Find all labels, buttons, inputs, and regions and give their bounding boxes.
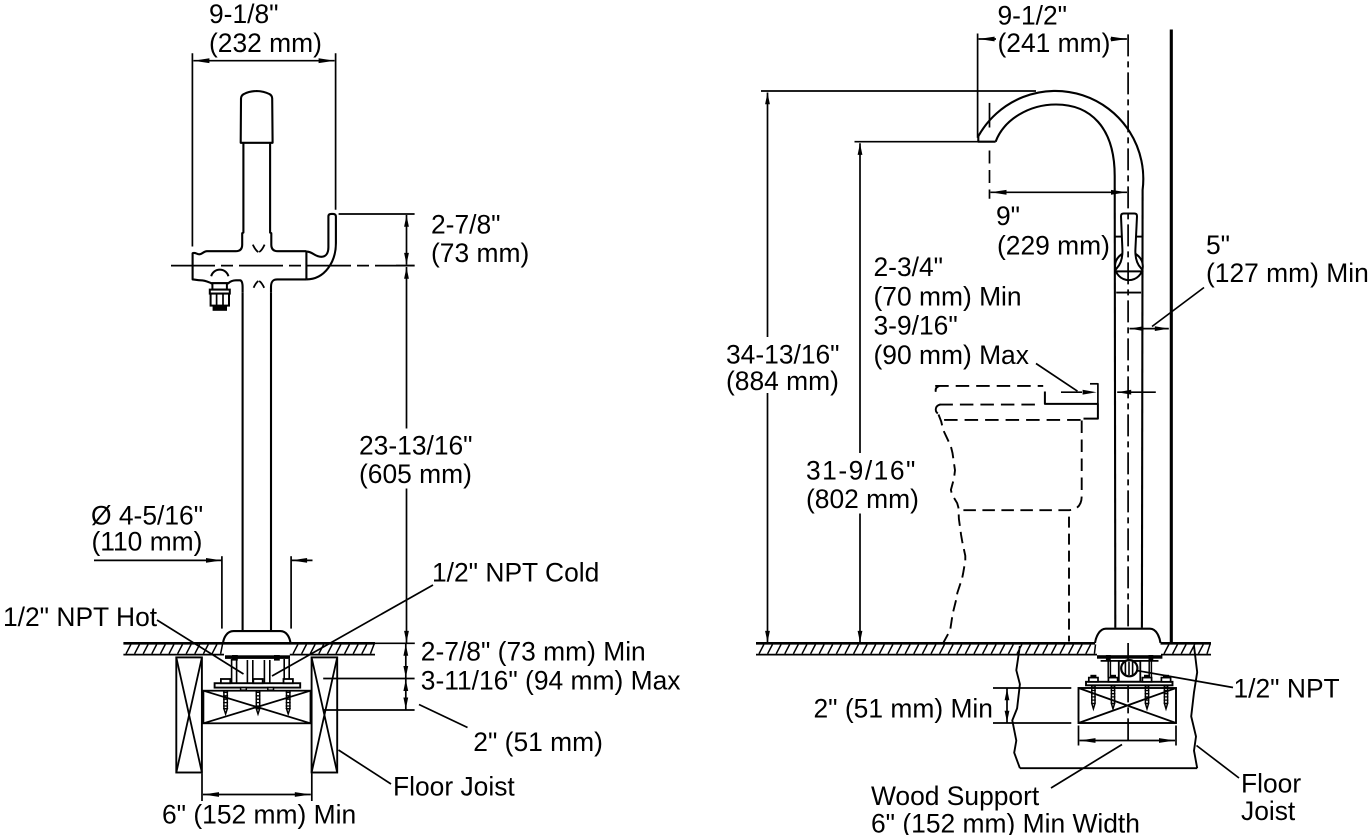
- svg-text:(802 mm): (802 mm): [806, 484, 919, 514]
- svg-text:1/2" NPT: 1/2" NPT: [1234, 674, 1340, 704]
- svg-text:2-7/8": 2-7/8": [431, 210, 501, 240]
- svg-text:(90 mm) Max: (90 mm) Max: [874, 340, 1029, 370]
- svg-text:(73 mm): (73 mm): [431, 238, 529, 268]
- svg-text:(605 mm): (605 mm): [359, 459, 472, 489]
- svg-text:2" (51 mm) Min: 2" (51 mm) Min: [814, 694, 993, 724]
- svg-text:Joist: Joist: [1241, 796, 1296, 826]
- svg-text:3-9/16": 3-9/16": [874, 311, 958, 341]
- svg-text:9": 9": [996, 201, 1020, 231]
- svg-text:1/2" NPT Hot: 1/2" NPT Hot: [3, 602, 158, 632]
- svg-text:1/2" NPT Cold: 1/2" NPT Cold: [432, 558, 599, 588]
- svg-text:2-7/8" (73 mm) Min: 2-7/8" (73 mm) Min: [421, 637, 646, 667]
- svg-text:(232 mm): (232 mm): [209, 28, 322, 58]
- svg-text:(229 mm): (229 mm): [997, 231, 1110, 261]
- svg-text:Floor Joist: Floor Joist: [393, 771, 515, 801]
- svg-text:(110 mm): (110 mm): [92, 527, 203, 557]
- svg-text:6" (152 mm) Min Width: 6" (152 mm) Min Width: [871, 809, 1140, 835]
- svg-text:(127 mm) Min: (127 mm) Min: [1206, 258, 1369, 288]
- svg-text:5": 5": [1206, 230, 1230, 260]
- svg-text:31-9/16": 31-9/16": [806, 456, 917, 486]
- svg-text:Wood Support: Wood Support: [871, 781, 1040, 811]
- svg-text:34-13/16": 34-13/16": [726, 340, 840, 370]
- svg-text:9-1/8": 9-1/8": [209, 0, 279, 29]
- svg-text:(884 mm): (884 mm): [726, 366, 839, 396]
- svg-text:6" (152 mm) Min: 6" (152 mm) Min: [162, 800, 356, 830]
- svg-text:2" (51 mm): 2" (51 mm): [473, 727, 603, 757]
- svg-text:3-11/16" (94 mm) Max: 3-11/16" (94 mm) Max: [421, 666, 681, 696]
- svg-text:9-1/2": 9-1/2": [998, 1, 1068, 31]
- svg-text:(70 mm) Min: (70 mm) Min: [874, 281, 1022, 311]
- svg-text:2-3/4": 2-3/4": [874, 252, 944, 282]
- svg-text:(241 mm): (241 mm): [998, 28, 1111, 58]
- svg-text:23-13/16": 23-13/16": [359, 431, 473, 461]
- svg-text:Floor: Floor: [1241, 769, 1301, 799]
